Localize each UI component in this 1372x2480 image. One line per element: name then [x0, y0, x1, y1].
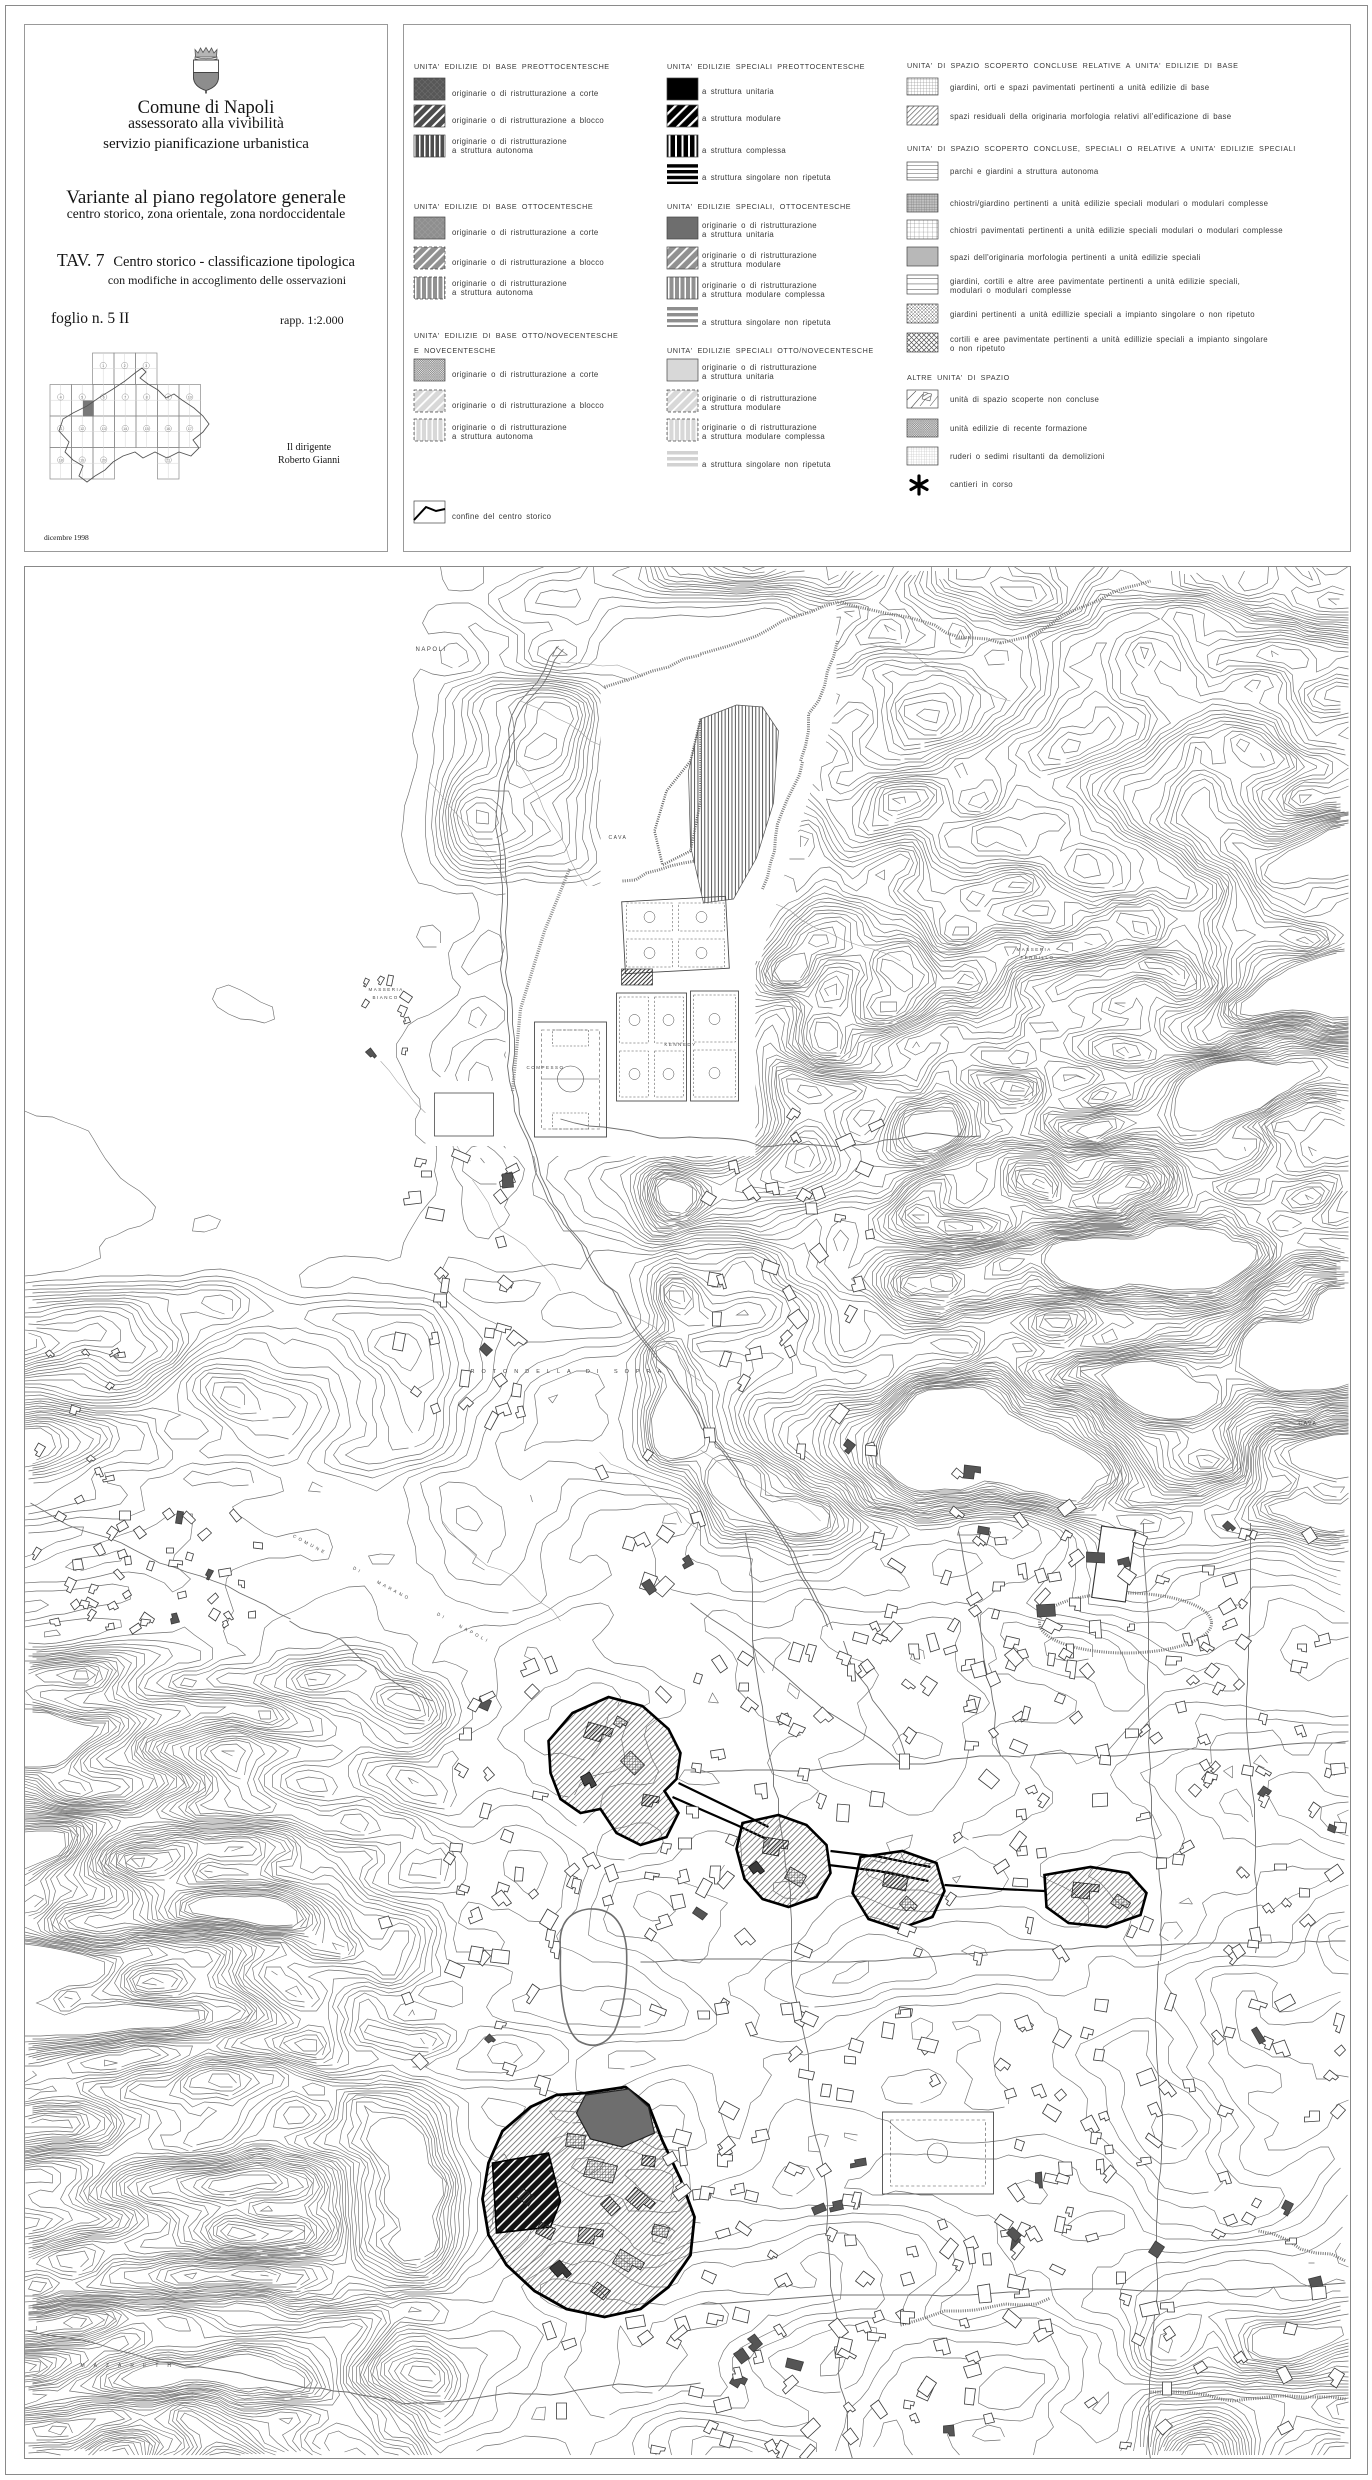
svg-text:15: 15 [145, 427, 149, 431]
svg-text:giardini, cortili e altre aree: giardini, cortili e altre aree pavimenta… [950, 277, 1240, 286]
svg-text:confine del centro storico: confine del centro storico [452, 512, 552, 521]
svg-text:originarie o di ristrutturazio: originarie o di ristrutturazione [452, 279, 567, 288]
svg-text:originarie o di ristrutturazio: originarie o di ristrutturazione [702, 221, 817, 230]
svg-text:a struttura modulare complessa: a struttura modulare complessa [702, 290, 825, 299]
svg-text:14: 14 [123, 427, 127, 431]
svg-text:13: 13 [102, 427, 106, 431]
svg-text:a struttura modulare: a struttura modulare [702, 403, 781, 412]
svg-text:4: 4 [60, 395, 62, 399]
svg-text:UNITA' DI SPAZIO SCOPERTO CONC: UNITA' DI SPAZIO SCOPERTO CONCLUSE, SPEC… [907, 144, 1296, 153]
svg-text:modulari o modulari complesse: modulari o modulari complesse [950, 286, 1071, 295]
svg-text:unità di spazio scoperte non c: unità di spazio scoperte non concluse [950, 395, 1099, 404]
svg-text:a struttura modulare complessa: a struttura modulare complessa [702, 432, 825, 441]
svg-text:MARANO: MARANO [376, 1579, 412, 1601]
svg-text:FERRILLO: FERRILLO [1021, 955, 1055, 960]
svg-text:o non ripetuto: o non ripetuto [950, 344, 1005, 353]
svg-text:UNITA' EDILIZIE SPECIALI, OTTO: UNITA' EDILIZIE SPECIALI, OTTOCENTESCHE [667, 202, 851, 211]
svg-text:CAVA: CAVA [609, 835, 628, 841]
svg-text:originarie o di ristrutturazio: originarie o di ristrutturazione a corte [452, 370, 599, 379]
svg-text:ALTRE UNITA' DI SPAZIO: ALTRE UNITA' DI SPAZIO [907, 373, 1010, 382]
svg-text:spazi dell'originaria morfolog: spazi dell'originaria morfologia pertine… [950, 253, 1201, 262]
svg-text:7: 7 [124, 395, 126, 399]
svg-text:DI: DI [436, 1611, 448, 1620]
svg-text:2: 2 [124, 364, 126, 368]
svg-text:21: 21 [166, 458, 170, 462]
svg-text:UNITA' EDILIZIE DI BASE PREOTT: UNITA' EDILIZIE DI BASE PREOTTOCENTESCHE [414, 62, 610, 71]
svg-text:originarie o di ristrutturazio: originarie o di ristrutturazione a blocc… [452, 258, 604, 267]
svg-text:originarie o di ristrutturazio: originarie o di ristrutturazione a corte [452, 228, 599, 237]
svg-text:NAPOLI: NAPOLI [416, 647, 447, 653]
svg-text:originarie o di ristrutturazio: originarie o di ristrutturazione [702, 281, 817, 290]
svg-text:originarie o di ristrutturazio: originarie o di ristrutturazione [452, 137, 567, 146]
svg-text:a struttura autonoma: a struttura autonoma [452, 432, 534, 441]
svg-text:originarie o di ristrutturazio: originarie o di ristrutturazione a corte [452, 89, 599, 98]
svg-text:UNITA' EDILIZIE SPECIALI PREOT: UNITA' EDILIZIE SPECIALI PREOTTOCENTESCH… [667, 62, 865, 71]
svg-text:a struttura singolare non ripe: a struttura singolare non ripetuta [702, 318, 831, 327]
svg-text:UNITA' DI SPAZIO SCOPERTO CONC: UNITA' DI SPAZIO SCOPERTO CONCLUSE RELAT… [907, 61, 1238, 70]
svg-text:originarie o di ristrutturazio: originarie o di ristrutturazione [702, 423, 817, 432]
svg-text:COMPESSO: COMPESSO [526, 1065, 564, 1070]
svg-text:5: 5 [81, 395, 83, 399]
svg-text:ROTONDELLA DI SOPRA: ROTONDELLA DI SOPRA [471, 1369, 669, 1375]
svg-text:MAZARETH: MAZARETH [81, 2363, 181, 2369]
svg-text:chiostri/giardino pertinenti a: chiostri/giardino pertinenti a unità edi… [950, 199, 1268, 208]
svg-text:originarie o di ristrutturazio: originarie o di ristrutturazione [452, 423, 567, 432]
svg-text:ruderi o sedimi risultanti da: ruderi o sedimi risultanti da demolizion… [950, 452, 1105, 461]
svg-text:chiostri pavimentati pertinent: chiostri pavimentati pertinenti a unità … [950, 226, 1283, 235]
svg-text:KENNEDY: KENNEDY [664, 1042, 696, 1047]
svg-text:a struttura unitaria: a struttura unitaria [702, 372, 774, 381]
svg-text:originarie o di ristrutturazio: originarie o di ristrutturazione a blocc… [452, 401, 604, 410]
svg-text:cantieri in corso: cantieri in corso [950, 480, 1013, 489]
svg-text:a struttura unitaria: a struttura unitaria [702, 230, 774, 239]
svg-text:spazi residuali della originar: spazi residuali della originaria morfolo… [950, 112, 1231, 121]
svg-text:originarie o di ristrutturazio: originarie o di ristrutturazione a blocc… [452, 116, 604, 125]
svg-text:CAVA: CAVA [1299, 1421, 1318, 1427]
svg-text:unità edilizie di recente form: unità edilizie di recente formazione [950, 424, 1087, 433]
svg-text:a struttura autonoma: a struttura autonoma [452, 146, 534, 155]
svg-text:10: 10 [188, 395, 192, 399]
svg-text:cortili e aree pavimentate per: cortili e aree pavimentate pertinenti a … [950, 335, 1268, 344]
svg-text:E NOVECENTESCHE: E NOVECENTESCHE [414, 346, 496, 355]
svg-text:8: 8 [146, 395, 148, 399]
svg-text:UNITA' EDILIZIE SPECIALI OTTO/: UNITA' EDILIZIE SPECIALI OTTO/NOVECENTES… [667, 346, 874, 355]
svg-text:giardini, orti e spazi pavimen: giardini, orti e spazi pavimentati perti… [950, 83, 1209, 92]
svg-text:a struttura autonoma: a struttura autonoma [452, 288, 534, 297]
svg-text:MASSERIA: MASSERIA [369, 987, 404, 992]
svg-text:MASSERIA: MASSERIA [1017, 947, 1052, 952]
svg-text:BIANCO: BIANCO [373, 995, 399, 1000]
svg-text:12: 12 [80, 427, 84, 431]
svg-text:UNITA' EDILIZIE DI BASE OTTOCE: UNITA' EDILIZIE DI BASE OTTOCENTESCHE [414, 202, 593, 211]
svg-text:1: 1 [102, 364, 104, 368]
svg-text:a struttura modulare: a struttura modulare [702, 114, 781, 123]
svg-text:3: 3 [145, 364, 147, 368]
svg-text:originarie o di ristrutturazio: originarie o di ristrutturazione [702, 251, 817, 260]
svg-text:6: 6 [103, 395, 105, 399]
svg-text:giardini pertinenti a unità ed: giardini pertinenti a unità edillizie sp… [950, 310, 1255, 319]
svg-text:16: 16 [166, 427, 170, 431]
svg-text:19: 19 [80, 458, 84, 462]
svg-text:UNITA' EDILIZIE DI BASE OTTO/N: UNITA' EDILIZIE DI BASE OTTO/NOVECENTESC… [414, 331, 618, 340]
svg-text:20: 20 [102, 458, 106, 462]
svg-text:18: 18 [59, 458, 63, 462]
svg-text:a struttura complessa: a struttura complessa [702, 146, 786, 155]
svg-text:originarie o di ristrutturazio: originarie o di ristrutturazione [702, 394, 817, 403]
svg-text:a struttura unitaria: a struttura unitaria [702, 87, 774, 96]
svg-text:17: 17 [188, 427, 192, 431]
svg-text:parchi e giardini a struttura: parchi e giardini a struttura autonoma [950, 167, 1099, 176]
svg-text:a struttura modulare: a struttura modulare [702, 260, 781, 269]
svg-text:DI: DI [352, 1565, 364, 1574]
svg-text:a struttura singolare non ripe: a struttura singolare non ripetuta [702, 173, 831, 182]
svg-text:a struttura singolare non ripe: a struttura singolare non ripetuta [702, 460, 831, 469]
svg-text:originarie o di ristrutturazio: originarie o di ristrutturazione [702, 363, 817, 372]
svg-text:COMUNE: COMUNE [292, 1533, 328, 1555]
